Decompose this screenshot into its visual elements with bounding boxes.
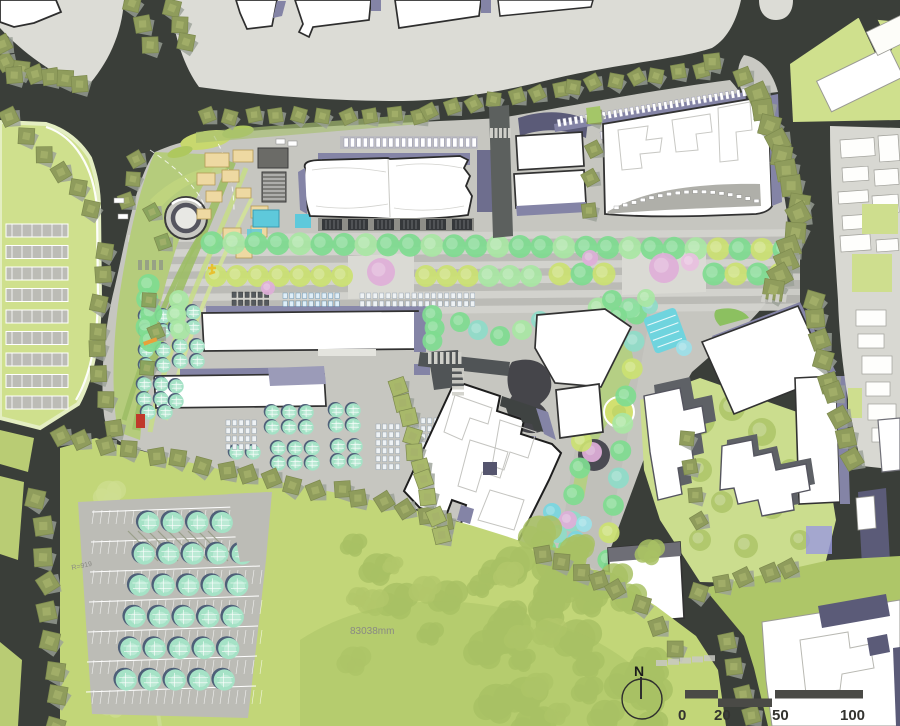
svg-text:83038mm: 83038mm bbox=[350, 626, 394, 637]
svg-text:50: 50 bbox=[772, 707, 789, 724]
svg-text:100: 100 bbox=[840, 707, 865, 724]
svg-text:0: 0 bbox=[678, 707, 686, 724]
svg-text:20: 20 bbox=[714, 707, 731, 724]
svg-text:N: N bbox=[634, 663, 644, 679]
